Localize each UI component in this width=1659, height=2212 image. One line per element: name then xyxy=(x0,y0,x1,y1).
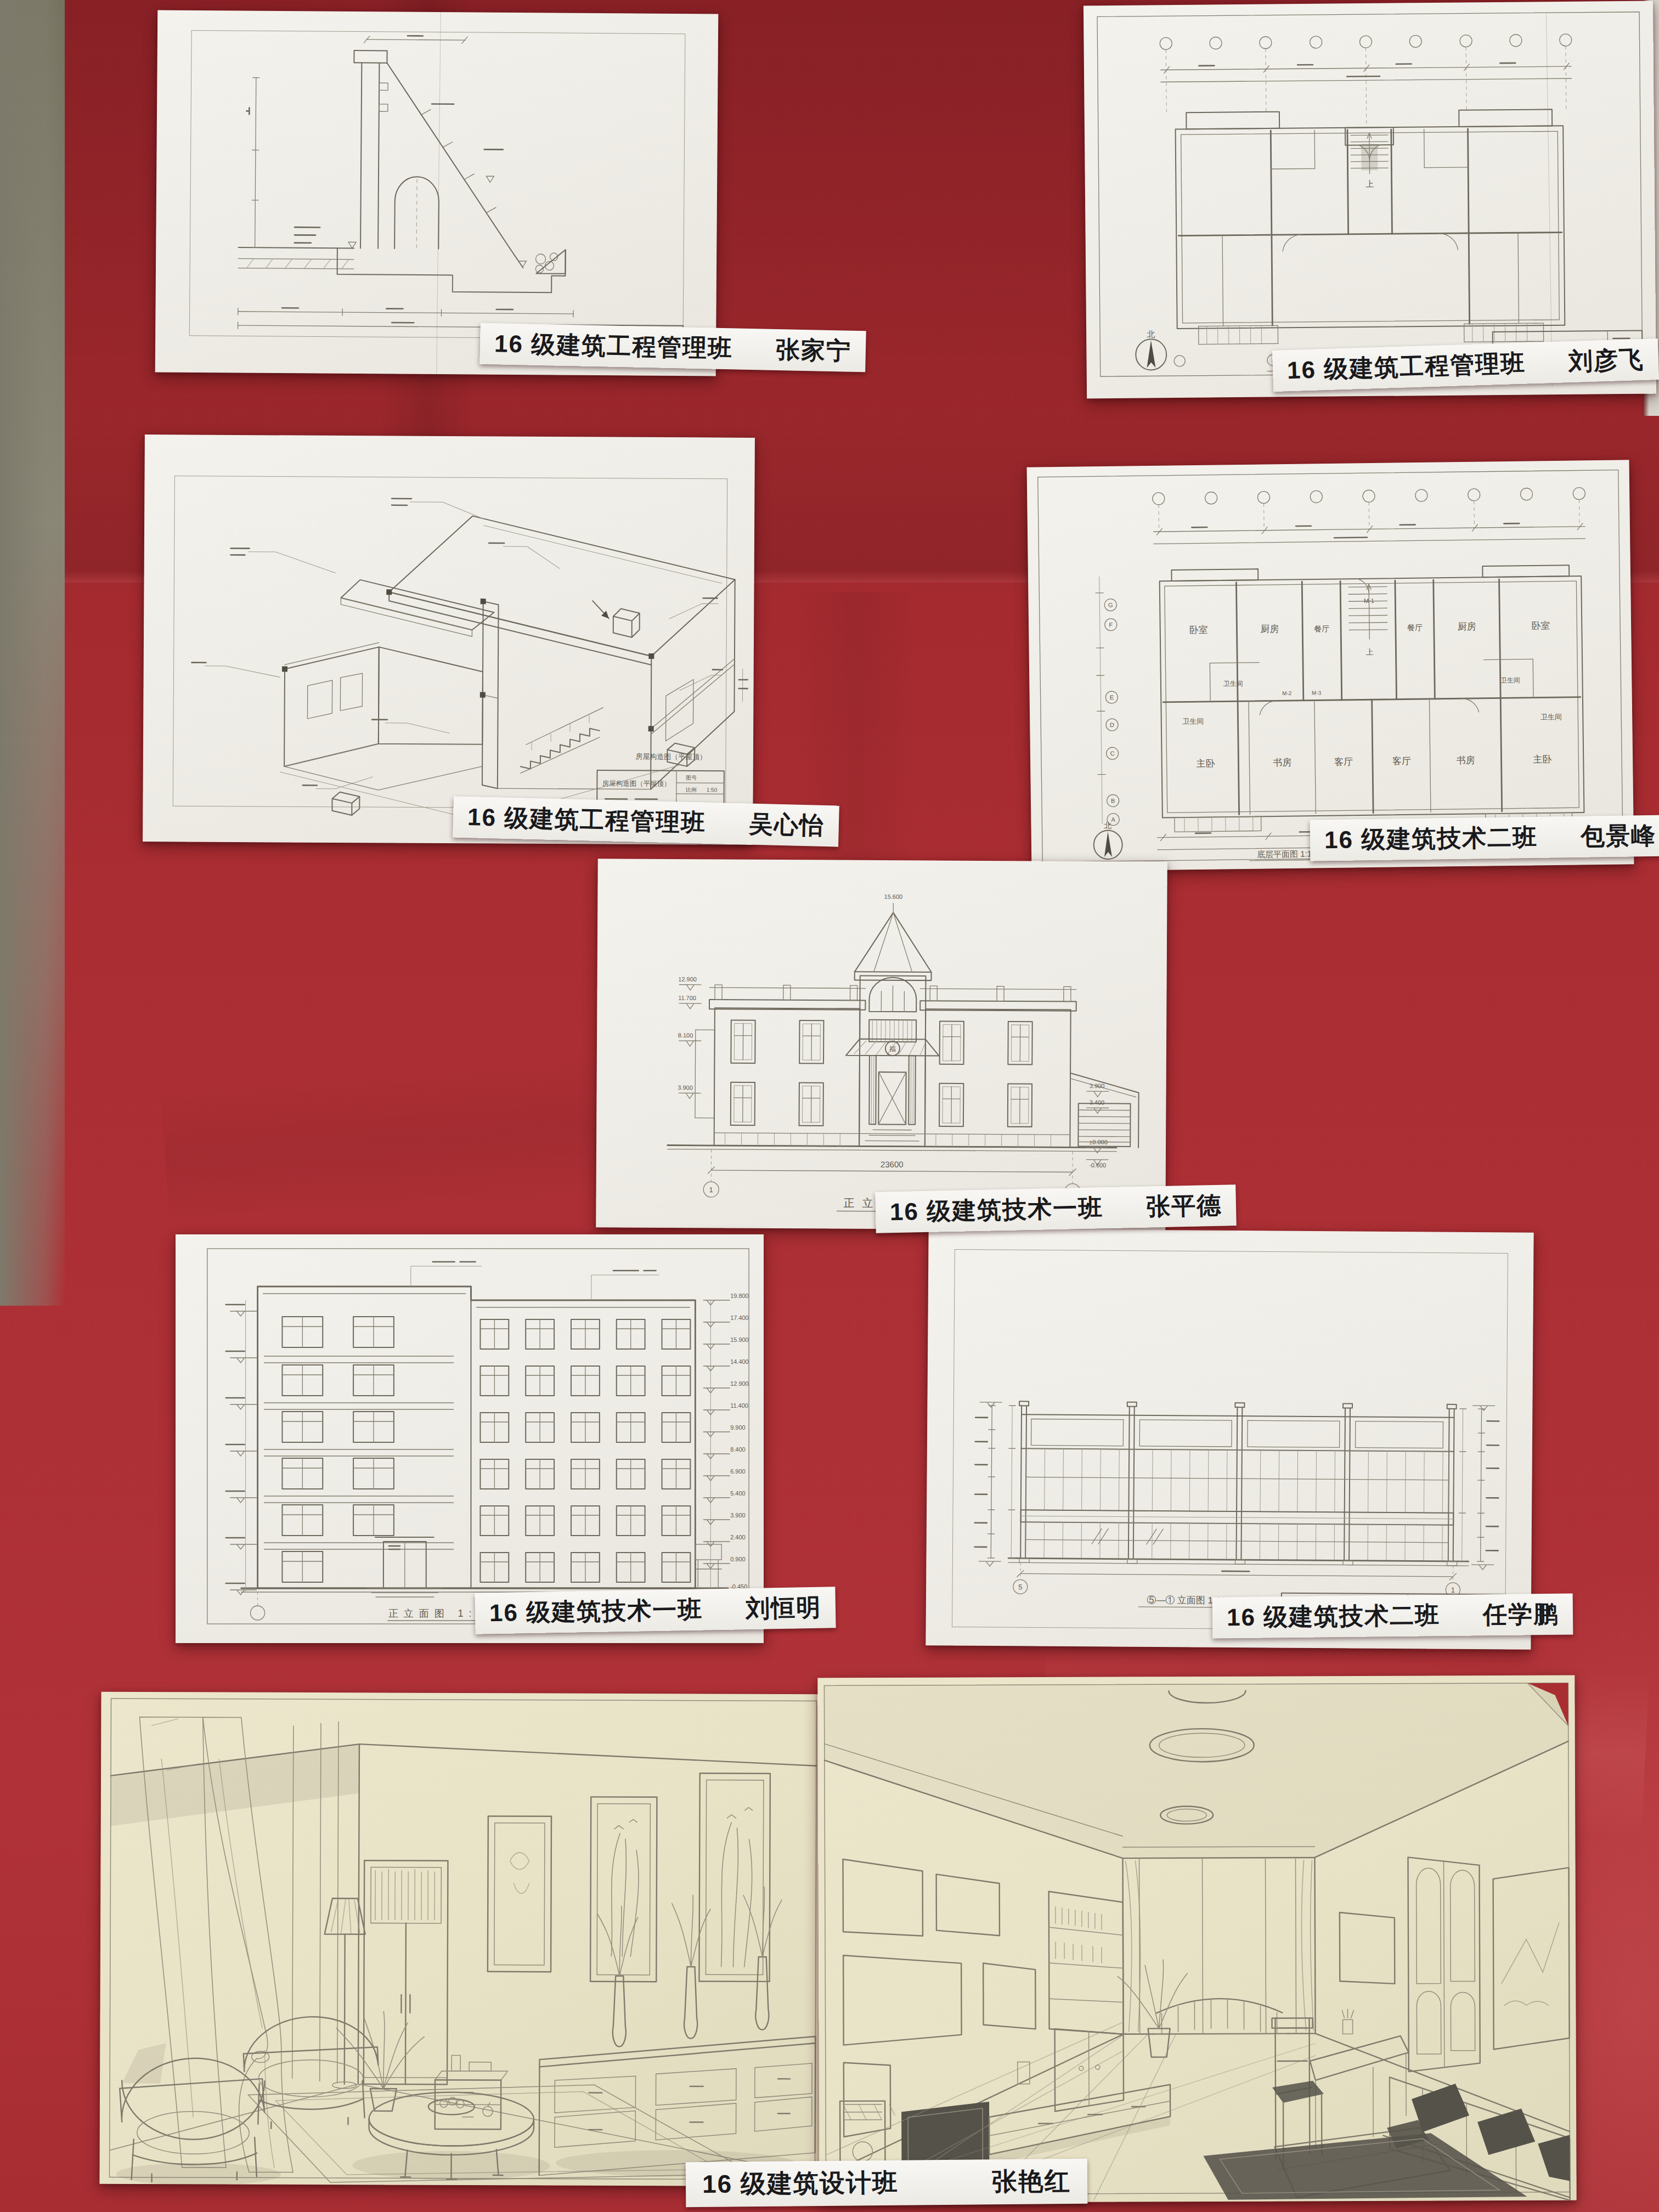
svg-text:9.900: 9.900 xyxy=(730,1424,745,1431)
paper-six-storey-elevation: 19.800 17.400 15.900 14.400 12.900 11.40… xyxy=(176,1234,764,1643)
svg-text:8.100: 8.100 xyxy=(678,1032,693,1039)
svg-text:E: E xyxy=(1110,694,1114,701)
floor-plan-drawing: 上 北 底层平面图 xyxy=(1084,1,1656,398)
class-name: 16 级建筑技术一班 xyxy=(889,1192,1103,1228)
scale-value: 1:50 xyxy=(707,787,718,793)
axonometric-drawing: 房屋构造图（平屋顶） 房屋构造图（平屋顶） 图号 比例 1:50 xyxy=(143,435,755,845)
paper-villa-elevation: 15.600 福 xyxy=(596,859,1167,1230)
wall-frames xyxy=(488,1773,770,1982)
paper-axonometric: 房屋构造图（平屋顶） 房屋构造图（平屋顶） 图号 比例 1:50 xyxy=(143,435,755,845)
stair-up-label: 上 xyxy=(1365,179,1374,188)
svg-text:15.900: 15.900 xyxy=(730,1336,749,1343)
class-name: 16 级建筑工程管理班 xyxy=(467,801,706,839)
tower-window xyxy=(869,978,916,1042)
student-label-renxuepeng: 16 级建筑技术二班任学鹏 xyxy=(1212,1594,1573,1639)
student-name: 包景峰 xyxy=(1581,820,1657,853)
svg-text:14.400: 14.400 xyxy=(730,1358,749,1365)
roof-leaders xyxy=(411,1262,668,1610)
handwritten-note: 房屋构造图（平屋顶） xyxy=(635,752,707,761)
north-arrow-icon: 北 xyxy=(1093,821,1122,859)
svg-text:M-3: M-3 xyxy=(1312,690,1322,696)
retaining-wall-drawing xyxy=(155,10,719,376)
svg-text:1: 1 xyxy=(709,1186,713,1194)
pilasters xyxy=(1018,1401,1457,1561)
sheet-no-label: 图号 xyxy=(686,775,697,781)
paper-interior-sketch-left xyxy=(99,1692,826,2187)
label-gap xyxy=(1538,837,1581,837)
svg-text:卫生间: 卫生间 xyxy=(1182,717,1204,726)
display-board: 上 北 底层平面图 xyxy=(0,0,1659,2212)
title-block-text: 房屋构造图（平屋顶） xyxy=(602,780,671,788)
svg-text:5: 5 xyxy=(1018,1583,1022,1591)
north-arrow-icon: 北 xyxy=(1136,329,1167,370)
class-name: 16 级建筑设计班 xyxy=(702,2166,899,2202)
floor-lamp xyxy=(324,1898,365,2089)
student-label-liuhengming: 16 级建筑技术一班刘恒明 xyxy=(475,1587,836,1634)
svg-text:B: B xyxy=(1111,797,1115,804)
svg-text:6.900: 6.900 xyxy=(730,1468,745,1475)
label-gap xyxy=(733,349,776,350)
stair: 上 xyxy=(1351,133,1389,189)
paper-storefront-elevation: 5 1 ⑤—① 立面图 1:100 ⑤—① 立面图 图号 建施-6 比例 1:1… xyxy=(926,1228,1533,1650)
medallion-plaque: 福 xyxy=(889,1045,896,1053)
student-name: 张家宁 xyxy=(776,334,852,368)
rug-dark xyxy=(1203,2133,1527,2200)
plant xyxy=(1118,1960,1188,2057)
svg-text:卧室: 卧室 xyxy=(1189,625,1208,635)
armchair-front xyxy=(117,2043,264,2182)
tall-vases xyxy=(597,1887,782,2047)
student-name: 刘恒明 xyxy=(746,1592,822,1625)
interior-sketch-living-room xyxy=(99,1692,826,2187)
wing-windows xyxy=(731,1020,1032,1126)
paper-floor-plan-bao: A B C D E F G xyxy=(1027,460,1634,871)
svg-text:M-2: M-2 xyxy=(1282,690,1292,696)
svg-text:M-1: M-1 xyxy=(1364,597,1374,604)
storefront-elevation-drawing: 5 1 ⑤—① 立面图 1:100 ⑤—① 立面图 图号 建施-6 比例 1:1… xyxy=(926,1228,1533,1650)
right-wall xyxy=(1339,1857,1569,2072)
entrance xyxy=(367,1537,443,1597)
facade: 15.600 xyxy=(668,892,1118,1152)
class-name: 16 级建筑技术二班 xyxy=(1227,1599,1441,1634)
roof-plane xyxy=(389,516,736,665)
axis-bubbles-left: A B C D E F G xyxy=(1096,576,1119,826)
svg-text:3.900: 3.900 xyxy=(1090,1082,1105,1089)
svg-text:客厅: 客厅 xyxy=(1334,757,1353,767)
student-name: 张艳红 xyxy=(992,2164,1071,2199)
spire-height: 15.600 xyxy=(884,893,903,900)
grid-bubbles-top xyxy=(1153,487,1585,532)
wardrobe xyxy=(364,1860,448,2084)
paper-retaining-wall-section xyxy=(155,10,719,376)
six-storey-elevation-drawing: 19.800 17.400 15.900 14.400 12.900 11.40… xyxy=(176,1234,764,1643)
student-name: 吴心怡 xyxy=(748,808,825,842)
svg-text:卫生间: 卫生间 xyxy=(1223,680,1243,687)
svg-text:书房: 书房 xyxy=(1273,757,1291,768)
villa-elevation-drawing: 15.600 福 xyxy=(596,859,1167,1230)
scale-label: 比例 xyxy=(686,787,697,793)
dimension-lines xyxy=(238,35,575,331)
total-width: 23600 xyxy=(881,1160,904,1169)
svg-text:±0.000: ±0.000 xyxy=(1089,1138,1108,1145)
svg-text:卧室: 卧室 xyxy=(1531,620,1550,631)
svg-text:书房: 书房 xyxy=(1457,755,1475,765)
svg-text:餐厅: 餐厅 xyxy=(1314,624,1329,633)
student-name: 任学鹏 xyxy=(1483,1598,1559,1631)
svg-text:F: F xyxy=(1109,622,1113,628)
svg-text:厨房: 厨房 xyxy=(1458,622,1476,632)
svg-text:3.900: 3.900 xyxy=(730,1512,745,1519)
svg-text:厨房: 厨房 xyxy=(1260,624,1279,634)
spandrel-bands xyxy=(264,1356,454,1549)
fabric-crease xyxy=(160,1053,663,1229)
floor-plan-drawing: A B C D E F G xyxy=(1027,460,1634,871)
svg-text:12.900: 12.900 xyxy=(730,1380,749,1387)
label-gap xyxy=(1103,1207,1146,1208)
svg-text:卫生间: 卫生间 xyxy=(1541,713,1562,721)
stair-up-label: 上 xyxy=(1365,647,1373,656)
svg-text:3.900: 3.900 xyxy=(678,1084,693,1091)
class-name: 16 级建筑工程管理班 xyxy=(1286,347,1526,387)
svg-text:主卧: 主卧 xyxy=(1197,758,1215,769)
svg-text:A: A xyxy=(1111,816,1115,823)
left-wall-edge xyxy=(0,0,65,1306)
wall-section xyxy=(353,50,524,268)
svg-text:12.900: 12.900 xyxy=(678,976,697,983)
room-lines xyxy=(110,1743,817,2175)
paper-floor-plan-liu: 上 北 底层平面图 xyxy=(1084,1,1656,398)
left-wall-frames xyxy=(843,1859,1036,2137)
potted-plant xyxy=(336,2011,425,2111)
dim-ladder-right xyxy=(1459,1406,1499,1570)
student-label-zhangjianing: 16 级建筑工程管理班张家宁 xyxy=(479,323,866,373)
student-name: 张平德 xyxy=(1146,1189,1222,1223)
student-name: 刘彦飞 xyxy=(1568,343,1645,378)
label-gap xyxy=(899,2182,992,2182)
label-gap xyxy=(706,823,749,824)
bookshelf xyxy=(1049,1891,1124,2111)
dimension-lines-top xyxy=(1161,63,1572,82)
svg-text:11.400: 11.400 xyxy=(730,1402,748,1409)
paper-interior-sketch-right xyxy=(817,1675,1576,2203)
svg-text:G: G xyxy=(1108,602,1113,608)
svg-text:3.400: 3.400 xyxy=(1090,1099,1105,1105)
student-label-baojingfeng: 16 级建筑技术二班包景峰 xyxy=(1310,815,1659,861)
elevation-ladder-right: 19.800 17.400 15.900 14.400 12.900 11.40… xyxy=(703,1293,748,1596)
base xyxy=(1008,1558,1469,1566)
ground-and-footing xyxy=(238,247,566,292)
class-name: 16 级建筑工程管理班 xyxy=(494,328,733,365)
svg-text:19.800: 19.800 xyxy=(730,1293,749,1299)
svg-text:17.400: 17.400 xyxy=(730,1314,749,1321)
svg-text:0.900: 0.900 xyxy=(730,1556,745,1562)
svg-text:C: C xyxy=(1110,750,1115,757)
svg-text:卫生间: 卫生间 xyxy=(1500,676,1520,684)
svg-text:2.400: 2.400 xyxy=(730,1534,745,1541)
north-label: 北 xyxy=(1147,329,1155,338)
svg-text:11.700: 11.700 xyxy=(678,995,696,1001)
dimension-lines-top xyxy=(1153,523,1585,544)
stair: 上 xyxy=(1348,584,1387,656)
north-label: 北 xyxy=(1104,821,1111,830)
svg-text:D: D xyxy=(1110,721,1114,728)
dim-ladder-left xyxy=(974,1402,1015,1567)
student-label-zhangpingde: 16 级建筑技术一班张平德 xyxy=(875,1184,1237,1233)
balcony-door xyxy=(1125,1858,1313,2034)
elevation-marks-left: 12.900 11.700 8.100 3.900 xyxy=(678,976,701,1099)
svg-text:主卧: 主卧 xyxy=(1533,754,1551,765)
svg-text:客厅: 客厅 xyxy=(1392,756,1411,766)
student-label-zhangyanhong: 16 级建筑设计班张艳红 xyxy=(686,2159,1088,2207)
left-room xyxy=(284,642,483,791)
svg-text:餐厅: 餐厅 xyxy=(1407,623,1423,632)
svg-text:-0.600: -0.600 xyxy=(1089,1162,1106,1169)
class-name: 16 级建筑技术二班 xyxy=(1324,821,1538,856)
right-windows xyxy=(480,1319,690,1582)
elevation-ladder-left xyxy=(226,1300,257,1595)
label-gap xyxy=(1440,1615,1483,1616)
plan-walls xyxy=(1175,109,1565,329)
class-name: 16 级建筑技术一班 xyxy=(489,1593,703,1629)
svg-text:8.400: 8.400 xyxy=(730,1446,745,1453)
dimension-bottom: 5 1 xyxy=(1013,1562,1460,1597)
building-outline xyxy=(241,1286,729,1592)
label-gap xyxy=(703,1609,746,1610)
svg-text:5.400: 5.400 xyxy=(730,1490,745,1497)
label-gap xyxy=(1526,362,1568,363)
side-porch xyxy=(695,1544,721,1588)
interior-sketch-perspective xyxy=(817,1675,1576,2203)
elevation-marks-right: 3.900 3.400 ±0.000 -0.600 xyxy=(1086,1082,1109,1169)
svg-text:1: 1 xyxy=(1451,1586,1455,1594)
